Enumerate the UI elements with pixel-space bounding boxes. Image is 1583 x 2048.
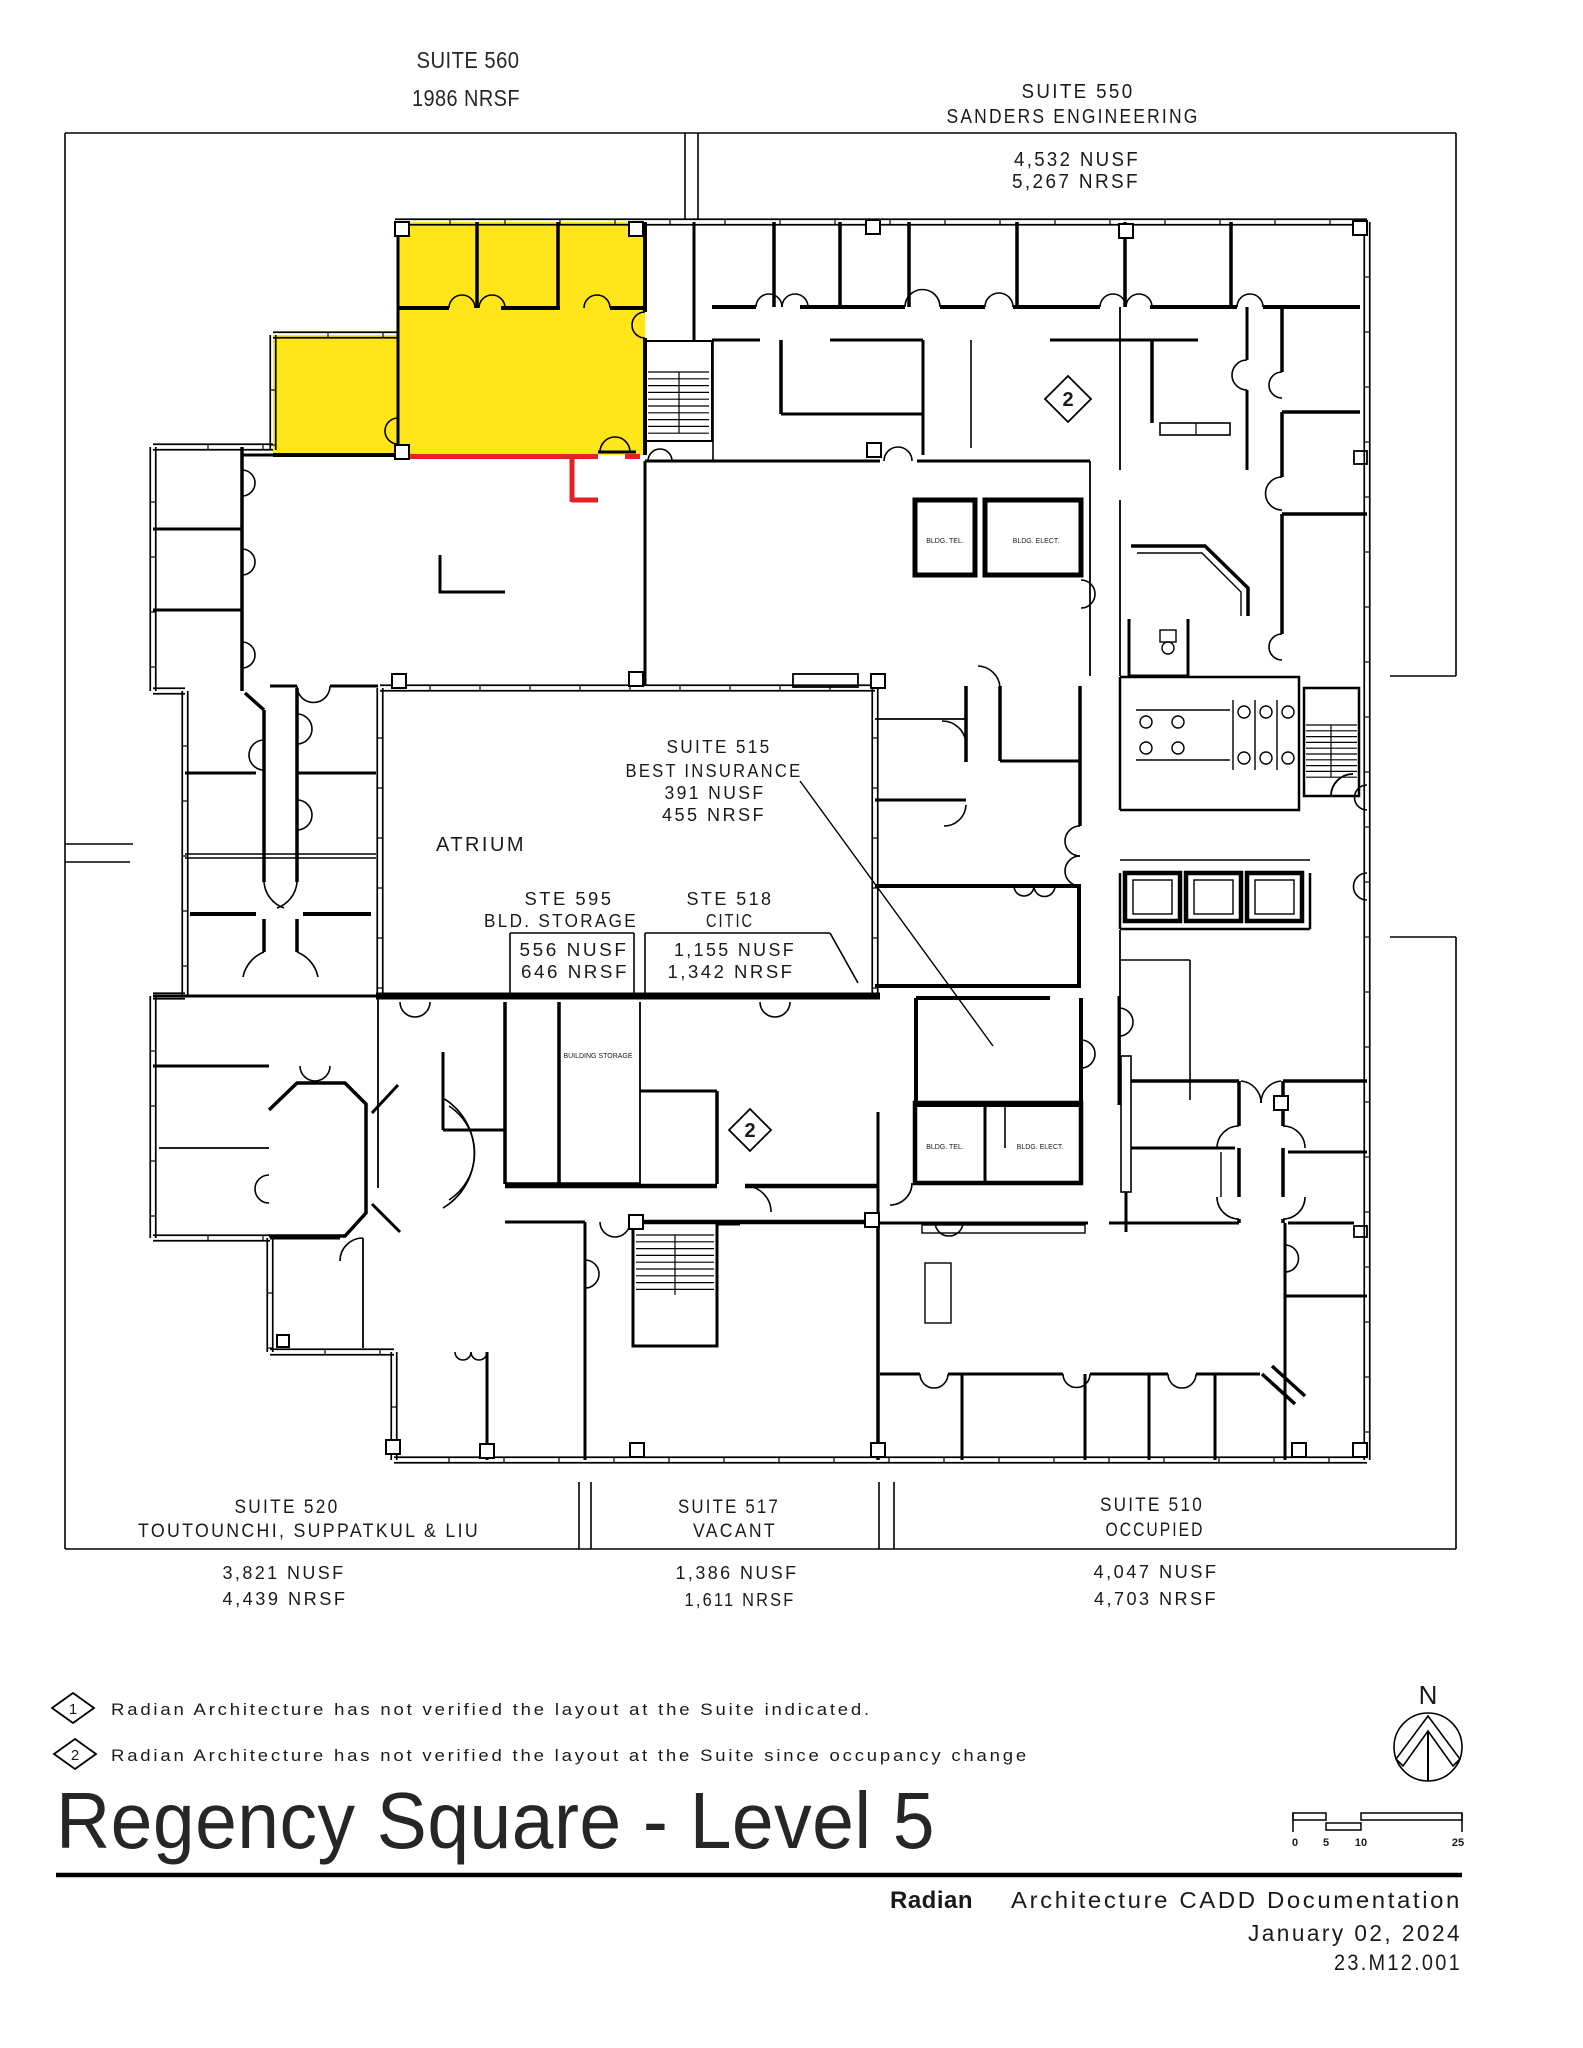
svg-text:2: 2 — [71, 1747, 79, 1764]
svg-text:0: 0 — [1292, 1837, 1298, 1849]
svg-text:5: 5 — [1323, 1837, 1329, 1849]
svg-text:STE 518: STE 518 — [687, 888, 774, 909]
svg-text:1986 NRSF: 1986 NRSF — [412, 85, 520, 111]
svg-text:10: 10 — [1355, 1837, 1367, 1849]
svg-text:BLDG. ELECT.: BLDG. ELECT. — [1013, 538, 1060, 545]
svg-text:4,047 NUSF: 4,047 NUSF — [1094, 1561, 1219, 1582]
svg-text:3,821 NUSF: 3,821 NUSF — [223, 1562, 346, 1583]
svg-text:4,703 NRSF: 4,703 NRSF — [1094, 1588, 1218, 1609]
svg-text:January 02, 2024: January 02, 2024 — [1248, 1920, 1462, 1946]
svg-text:4,532 NUSF: 4,532 NUSF — [1014, 149, 1140, 171]
svg-text:SUITE 510: SUITE 510 — [1100, 1495, 1204, 1516]
svg-text:TOUTOUNCHI, SUPPATKUL & LIU: TOUTOUNCHI, SUPPATKUL & LIU — [138, 1521, 480, 1542]
svg-text:23.M12.001: 23.M12.001 — [1334, 1950, 1462, 1975]
svg-text:455 NRSF: 455 NRSF — [662, 804, 766, 825]
svg-text:SUITE 560: SUITE 560 — [417, 47, 520, 73]
svg-text:BLDG. TEL.: BLDG. TEL. — [926, 538, 964, 545]
svg-text:5,267 NRSF: 5,267 NRSF — [1012, 171, 1140, 193]
svg-text:N: N — [1419, 1680, 1438, 1710]
svg-text:391 NUSF: 391 NUSF — [665, 782, 766, 803]
svg-text:1: 1 — [69, 1701, 77, 1718]
svg-text:Regency Square - Level 5: Regency Square - Level 5 — [56, 1776, 935, 1865]
svg-text:SUITE 515: SUITE 515 — [667, 736, 772, 757]
svg-text:BLDG. ELECT.: BLDG. ELECT. — [1017, 1144, 1064, 1151]
svg-text:2: 2 — [1062, 389, 1073, 411]
svg-text:556 NUSF: 556 NUSF — [520, 939, 629, 960]
svg-text:ATRIUM: ATRIUM — [436, 834, 526, 856]
svg-text:1,342 NRSF: 1,342 NRSF — [668, 961, 795, 982]
svg-text:1,386 NUSF: 1,386 NUSF — [676, 1562, 799, 1583]
svg-text:BEST INSURANCE: BEST INSURANCE — [626, 760, 803, 781]
svg-text:Radian Architecture has not ve: Radian Architecture has not verified the… — [111, 1747, 1029, 1765]
svg-text:1,155 NUSF: 1,155 NUSF — [674, 939, 796, 960]
svg-text:646 NRSF: 646 NRSF — [521, 961, 629, 982]
svg-text:SANDERS ENGINEERING: SANDERS ENGINEERING — [947, 106, 1200, 128]
svg-text:CITIC: CITIC — [706, 910, 754, 931]
svg-text:Architecture CADD Documentatio: Architecture CADD Documentation — [1011, 1887, 1462, 1913]
svg-text:SUITE 517: SUITE 517 — [678, 1497, 780, 1518]
svg-text:SUITE 520: SUITE 520 — [235, 1497, 340, 1518]
svg-text:1,611 NRSF: 1,611 NRSF — [685, 1589, 796, 1610]
svg-text:4,439 NRSF: 4,439 NRSF — [223, 1588, 348, 1609]
svg-text:VACANT: VACANT — [693, 1521, 777, 1542]
svg-text:BUILDING STORAGE: BUILDING STORAGE — [563, 1053, 632, 1060]
svg-text:OCCUPIED: OCCUPIED — [1106, 1520, 1205, 1541]
svg-text:2: 2 — [744, 1120, 755, 1142]
svg-text:25: 25 — [1452, 1837, 1464, 1849]
svg-text:BLD. STORAGE: BLD. STORAGE — [484, 910, 638, 931]
svg-text:Radian Architecture has not ve: Radian Architecture has not verified the… — [111, 1701, 872, 1719]
svg-text:SUITE 550: SUITE 550 — [1022, 81, 1135, 103]
svg-text:Radian: Radian — [890, 1887, 973, 1914]
svg-text:BLDG. TEL.: BLDG. TEL. — [926, 1144, 964, 1151]
svg-text:STE 595: STE 595 — [525, 888, 614, 909]
